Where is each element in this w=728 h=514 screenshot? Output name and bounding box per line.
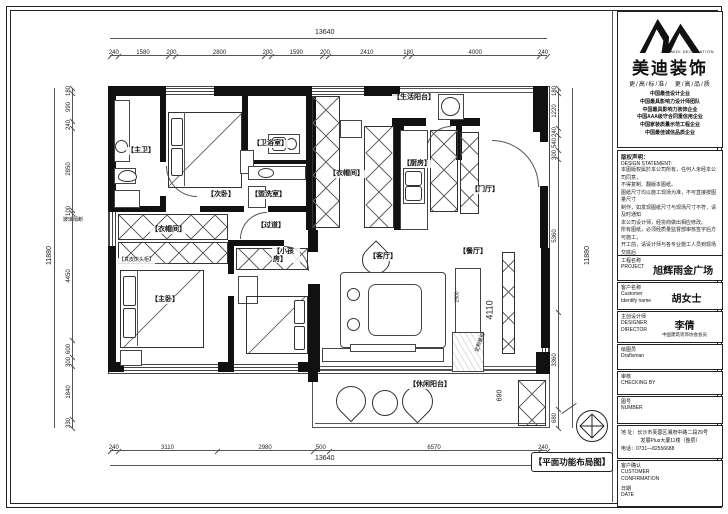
thin-line [54,88,55,428]
dim-value: 3360 [552,354,558,367]
dim-value: 2800 [213,50,226,56]
date-label-en: DATE [621,492,634,498]
room-label-utility-balcony: 【生活阳台】 [392,94,436,102]
wall [234,240,284,246]
element: 客户名称 Customer Identify name [618,283,651,304]
confirmation-box: 客户确认 CUSTOMER CONFIRMATION 日期 DATE [617,460,723,507]
dim-living-height: 4110 [485,300,495,319]
address-box: 地 址：长沙市芙蓉区湘府中路二段29号 发展Plus大厦11楼（整层） 电话：0… [617,425,723,459]
room-label-closet-center: 【衣帽间】 [328,170,365,178]
statement-text: 本图版权属於本公司所有，任何人未经本公司同意，不得复制、翻版本图纸。图纸尺寸均以… [621,167,719,258]
room-label-master-bedroom: 【主卧】 [150,296,180,304]
room-label-entry: 【门厅】 [470,186,500,194]
date-label: 日期 [621,486,631,492]
closet-wardrobe-left [312,96,340,228]
pillow [123,308,136,338]
element: 客户确认 CUSTOMER CONFIRMATION [618,461,722,482]
dim-value: 540 [552,138,558,148]
room-label-kids-room: 【小孩房】 [272,248,300,263]
dim-tick [556,426,562,432]
window [234,364,298,371]
drawing-sheet: 【主卫】 【次卧】 【卫浴室】 【盥洗室】 【衣帽间】 【衣帽间】 【过道】 【… [0,0,728,514]
window [312,88,364,95]
statement-box: 版权声明： DESIGN STATEMENT: 本图版权属於本公司所有，任何人未… [617,150,723,258]
dim-value: 6570 [427,445,440,451]
dim-value: 2410 [360,50,373,56]
room-label-leisure-balcony: 【休闲阳台】 [408,381,452,389]
fixture-outline [248,166,306,180]
wall [308,284,320,372]
fixture-outline [120,350,142,366]
dim-value: 4450 [66,270,72,283]
thin-line [137,270,138,346]
checker-box: 审核 CHECKING BY [617,371,723,395]
thin-line [110,465,547,466]
element: 审核 CHECKING BY [618,372,722,387]
dim-tick [556,406,562,412]
wall [214,86,312,96]
fixture-circle [118,170,137,182]
dim-tick [215,449,221,455]
thin-line [572,88,573,428]
balcony-table [372,390,398,416]
entry-closet [460,132,479,214]
list-item: 中国AAA级守合同重信用企业 [618,114,722,122]
thin-line [400,88,540,89]
thin-line [315,423,545,424]
list-item: 本图版权属於本公司所有，任何人未经本公司同意， [621,167,719,182]
address-line2: 发展Plus大厦11楼（整层） [621,437,720,445]
wall [536,352,550,374]
list-item: 中国最佳设计企业 [618,91,722,99]
dining-wall-cabinet [502,252,515,354]
company-name: 美迪装饰 [618,54,722,79]
title-block-panel: MIDI DECORATION 美迪装饰 更/高/标/准/ 更/高/品/质 中国… [614,0,728,514]
dim-value: 1590 [290,50,303,56]
designer-label-en: DESIGNER [621,320,647,326]
list-item: 中国家装质量示范工程企业 [618,122,722,130]
compass-pointer [561,403,576,414]
wall [540,186,548,248]
room-label-living-room: 【客厅】 [368,253,398,261]
thin-line [184,112,185,186]
room-label-kitchen: 【厨房】 [402,160,432,168]
element: 图号 NUMBER [618,397,722,412]
fixture-circle [441,97,460,116]
dim-tick [70,338,76,344]
kitchen-tall-cabinet [430,130,458,212]
dim-value: 1580 [136,50,149,56]
floor-plan: 【主卫】 【次卧】 【卫浴室】 【盥洗室】 【衣帽间】 【衣帽间】 【过道】 【… [0,0,612,514]
dim-tall-cabinet: 1500 [455,291,461,302]
customer-box: 客户名称 Customer Identify name 胡女士 [617,282,723,310]
dim-value: 2850 [66,162,72,175]
dim-value: 2980 [258,445,271,451]
checker-label-en: CHECKING BY [621,380,722,386]
address-line1: 地 址：长沙市芙蓉区湘府中路二段29号 [621,429,720,437]
fixture-circle [405,171,422,186]
element: 绘图员 Draftsman [618,345,722,360]
number-label-en: NUMBER [621,405,722,411]
panel-divider [612,10,613,502]
dim-chain-right: 180122024054030053603360680 [558,88,559,428]
dim-total-right: 11880 [584,246,591,265]
designer-label-en2: DIRECTOR [621,327,647,333]
dim-total-bottom: 13640 [315,455,334,462]
closet-wardrobe-right [364,126,394,228]
room-label-bathroom: 【卫浴室】 [252,140,289,148]
dim-value: 1220 [552,104,558,117]
pillow [294,300,305,324]
list-item: 中国最佳诚信品质企业 [618,130,722,138]
room-label-corridor: 【过道】 [256,222,286,230]
thin-line [110,38,547,39]
dim-tick [70,426,76,432]
dim-value: 680 [552,413,558,423]
wall [160,96,166,162]
pillow [171,118,183,146]
list-item: 所有图纸，必须经质量监督部审核签字后方可施工， [621,227,719,242]
address-line3: 电话：0731—82556688 [621,445,720,453]
wall [108,246,116,372]
dim-value: 3110 [161,445,174,451]
annotation-glass-partition: 玻璃隔断 [62,218,84,224]
dim-value: 1840 [66,386,72,399]
thin-line [400,92,540,93]
fixture-circle [347,318,360,331]
pillow [294,326,305,350]
customer-label-en2: Identify name [621,298,651,304]
honor-list: 中国最佳设计企业中国最具影响力设计师团队中国最具影响力装饰企业中国AAA级守合同… [618,91,722,138]
project-label-en: PROJECT [621,264,644,270]
dim-total-top: 13640 [315,29,334,36]
list-item: 图纸尺寸均以施工现场为准，不可直接按图量尺寸 [621,190,719,205]
element [640,19,669,53]
dim-chain-top: 24015802002800200159020024101804000240 [110,55,547,56]
wall [246,160,308,164]
wall [108,86,166,96]
number-box: 图号 NUMBER [617,396,723,424]
wall [540,132,548,142]
dim-value: 5360 [552,229,558,242]
plan-title: 【平面功能布局图】 [534,456,611,468]
list-item: 不得复制、翻版本图纸。 [621,182,719,190]
wall [308,230,318,252]
dim-value: 990 [66,102,72,112]
dim-chain-left: 180990240285010044506003001840330 [72,88,73,428]
designer-box: 主创设计师 DESIGNER DIRECTOR 李倩 中国建筑装饰协会会员 [617,311,723,343]
logo-box: MIDI DECORATION 美迪装饰 更/高/标/准/ 更/高/品/质 中国… [617,11,723,148]
thin-line [312,366,542,367]
dim-value: 600 [66,344,72,354]
project-box: 工程名称 PROJECT 旭辉雨金广场 [617,255,723,281]
room-label-washroom: 【盥洗室】 [250,191,287,199]
wall [533,86,548,132]
element: 主创设计师 DESIGNER DIRECTOR [618,312,647,333]
window [166,88,214,95]
element: 日期 DATE [618,482,722,499]
dim-balcony-cabinet: 690 [496,390,503,402]
draftsman-label-en: Draftsman [621,353,722,359]
dim-total-left: 11880 [46,246,53,265]
company-slogan: 更/高/标/准/ 更/高/品/质 [618,79,722,88]
draftsman-box: 绘图员 Draftsman [617,344,723,370]
fixture-circle [258,168,274,178]
statement-title: 版权声明： [621,153,719,161]
fixture-outline [114,190,140,208]
dim-tick [326,449,332,455]
room-label-closet-master: 【衣帽间】 [150,226,187,234]
fixture-circle [405,186,422,201]
window [109,212,116,246]
wall [200,206,244,212]
wall [268,206,308,212]
fixture-outline [350,344,416,352]
room-label-dining-room: 【餐厅】 [458,248,488,256]
list-item: 制作，如发现图纸尺寸与现场尺寸不符，请及时通知 [621,205,719,220]
designer-credential: 中国建筑装饰协会会员 [618,332,722,338]
fixture-outline [340,120,362,138]
element: MIDI DECORATION [618,16,722,54]
balcony-cabinet [518,380,546,426]
element: 地 址：长沙市芙蓉区湘府中路二段29号 发展Plus大厦11楼（整层） 电话：0… [618,426,722,453]
room-label-second-bedroom: 【次卧】 [206,191,236,199]
list-item: 中国最具影响力设计师团队 [618,99,722,107]
pillow [171,148,183,176]
dim-value: 4000 [469,50,482,56]
annotation-headboard: 【真皮床头柜】 [118,258,155,264]
list-item: 本公司设计师，经协商做出相应修改。 [621,220,719,228]
element: 工程名称 PROJECT [618,256,644,271]
element: 【平面功能布局图】 [531,452,613,472]
dim-chain-bottom: 240311029805006570240 [110,450,547,451]
dim-value: 500 [316,445,326,451]
fixture-outline [368,284,422,336]
room-label-master-bath: 【主卫】 [126,147,156,155]
fixture-circle [347,288,360,301]
thin-line [312,369,542,370]
pillow [123,276,136,306]
wall [541,248,550,348]
dim-tick [556,310,562,316]
wall [228,296,234,368]
